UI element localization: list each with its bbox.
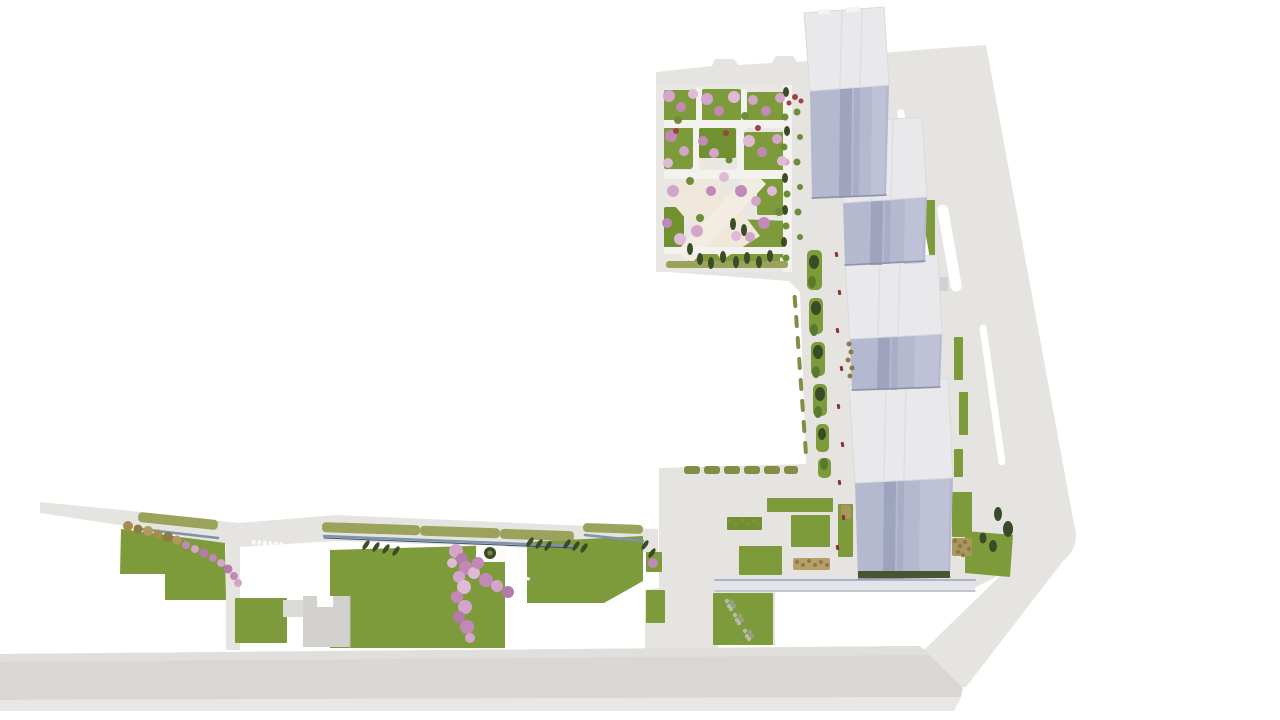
site-plan-viewport [0,0,1280,720]
site-plan-3d-render [0,0,1280,720]
